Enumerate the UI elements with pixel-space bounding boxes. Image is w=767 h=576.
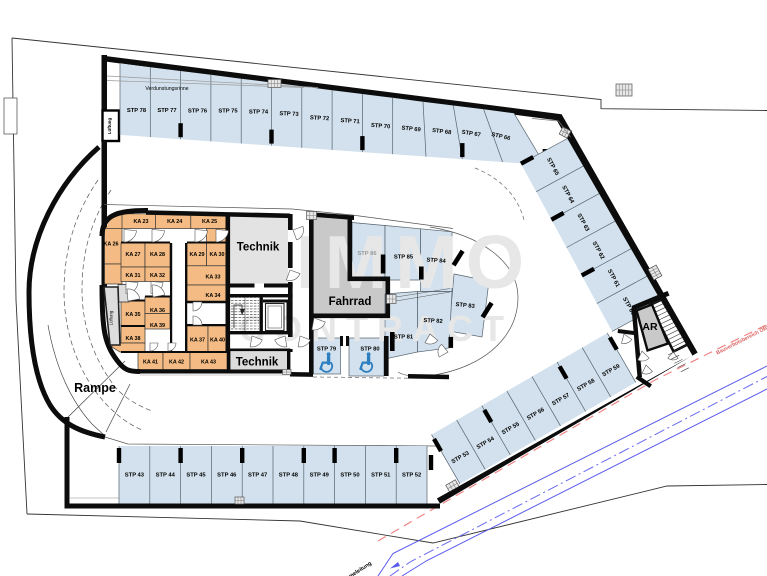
- svg-text:Lüftung: Lüftung: [109, 310, 114, 325]
- svg-text:Fahrrad: Fahrrad: [329, 296, 372, 308]
- svg-text:IMMO: IMMO: [296, 220, 532, 304]
- svg-text:STP 80: STP 80: [360, 347, 379, 353]
- svg-text:STP 81: STP 81: [394, 335, 414, 341]
- svg-text:STP 44: STP 44: [156, 473, 176, 479]
- svg-text:KA 33: KA 33: [205, 275, 220, 281]
- svg-text:Technik: Technik: [236, 357, 279, 369]
- svg-text:STP 77: STP 77: [157, 108, 176, 114]
- svg-text:Verdunstungsrinne: Verdunstungsrinne: [145, 86, 188, 92]
- svg-text:STP 73: STP 73: [279, 111, 299, 118]
- svg-text:KA 23: KA 23: [133, 219, 148, 225]
- svg-text:Technik: Technik: [237, 242, 280, 254]
- svg-text:KA 27: KA 27: [125, 252, 140, 258]
- svg-text:KA 36: KA 36: [150, 308, 165, 314]
- svg-text:STP 82: STP 82: [423, 318, 443, 325]
- svg-text:KA 42: KA 42: [169, 360, 184, 366]
- svg-text:STP 48: STP 48: [279, 473, 299, 479]
- svg-text:KA 43: KA 43: [201, 360, 216, 366]
- svg-text:STP 49: STP 49: [310, 473, 330, 479]
- svg-text:STP 79: STP 79: [317, 347, 337, 353]
- svg-text:STP 75: STP 75: [218, 109, 238, 115]
- svg-text:KA 38: KA 38: [125, 336, 140, 342]
- svg-text:KA 31: KA 31: [125, 273, 140, 279]
- svg-text:KA 26: KA 26: [103, 242, 118, 248]
- svg-text:KA 37: KA 37: [190, 338, 205, 344]
- svg-text:Lüftung: Lüftung: [107, 118, 112, 135]
- svg-text:KA 39: KA 39: [150, 323, 165, 329]
- svg-text:STP 50: STP 50: [340, 473, 359, 479]
- svg-text:KA 24: KA 24: [167, 219, 182, 225]
- svg-text:STP 86: STP 86: [357, 251, 377, 257]
- svg-text:KA 32: KA 32: [150, 273, 165, 279]
- svg-text:STP 52: STP 52: [402, 473, 421, 479]
- svg-text:STP 76: STP 76: [188, 109, 208, 115]
- svg-text:KA 40: KA 40: [210, 338, 225, 344]
- svg-text:Rampe: Rampe: [74, 381, 116, 395]
- svg-text:STP 85: STP 85: [394, 255, 414, 261]
- svg-text:KA 25: KA 25: [202, 219, 217, 225]
- svg-text:STP 45: STP 45: [186, 473, 206, 479]
- svg-text:STP 74: STP 74: [249, 110, 269, 116]
- svg-text:STP 43: STP 43: [125, 473, 145, 479]
- svg-text:KA 35: KA 35: [125, 312, 140, 318]
- svg-text:AR: AR: [642, 321, 658, 333]
- svg-text:STP 51: STP 51: [371, 473, 391, 479]
- svg-text:STP 46: STP 46: [217, 473, 237, 479]
- svg-text:KA 41: KA 41: [143, 360, 158, 366]
- svg-text:STP 47: STP 47: [248, 473, 267, 479]
- svg-text:KA 28: KA 28: [150, 252, 165, 258]
- svg-text:KA 29: KA 29: [189, 252, 204, 258]
- svg-text:STP 72: STP 72: [310, 115, 330, 122]
- svg-text:KA 34: KA 34: [205, 293, 220, 299]
- svg-text:KA 30: KA 30: [209, 252, 224, 258]
- svg-text:STP 78: STP 78: [127, 108, 147, 114]
